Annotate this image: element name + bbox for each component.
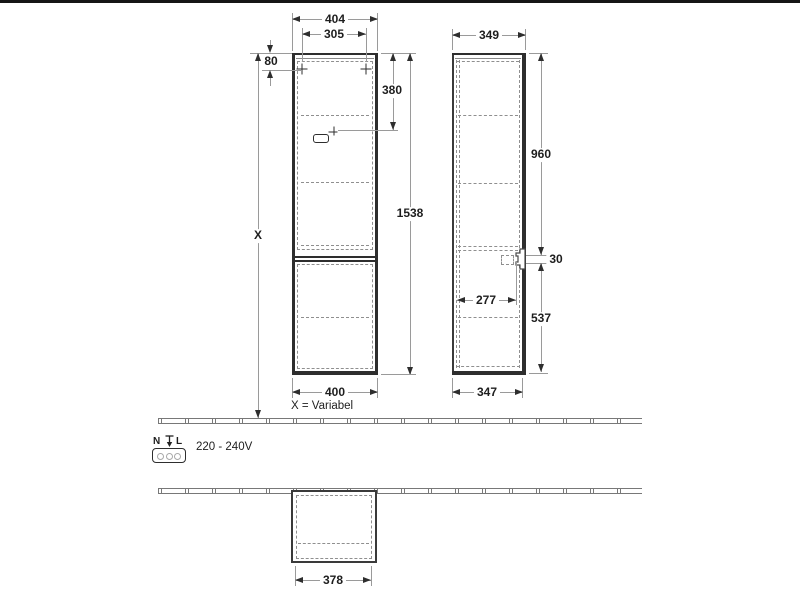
voltage-label: 220 - 240V — [196, 441, 252, 453]
dim-arrow-icon — [452, 32, 460, 38]
dimension-label: 378 — [320, 574, 346, 588]
dim-arrow-icon — [292, 16, 300, 22]
dim-arrow-icon — [267, 70, 273, 78]
plug-connector-icon — [511, 248, 531, 270]
cabinet-top-inner-line — [455, 58, 521, 59]
socket-reference-line — [338, 130, 398, 131]
socket-pin-icon — [174, 453, 181, 460]
shelf-line — [458, 246, 518, 247]
cabinet-top-edge — [452, 53, 526, 55]
dimension-label: 80 — [261, 55, 280, 69]
dimension-label: 349 — [476, 29, 502, 43]
cabinet-right-side — [375, 53, 378, 375]
socket-pin-icon — [157, 453, 164, 460]
cabinet-front-side — [522, 53, 526, 375]
extension-line — [516, 262, 517, 305]
top-border-line — [0, 0, 800, 3]
dim-arrow-icon — [538, 263, 544, 271]
interior-dashed-line — [457, 61, 519, 62]
dimension-label: 404 — [322, 13, 348, 27]
door-gap-lower-line — [295, 260, 375, 262]
shelf-line — [458, 317, 518, 318]
dim-arrow-icon — [390, 53, 396, 61]
extension-line — [452, 378, 453, 398]
extension-line — [381, 374, 416, 375]
dim-arrow-icon — [292, 389, 300, 395]
dim-arrow-icon — [255, 410, 261, 418]
shelf-line — [301, 317, 369, 318]
cabinet-bottom-edge — [292, 371, 378, 375]
shelf-line — [458, 250, 518, 251]
dimension-label: 1538 — [394, 207, 427, 221]
dim-arrow-icon — [518, 32, 526, 38]
dim-arrow-icon — [295, 577, 303, 583]
door-gap-upper-line — [295, 256, 375, 258]
wall-hatch-line — [158, 488, 642, 494]
dim-arrow-icon — [302, 31, 310, 37]
dimension-label: 537 — [528, 312, 554, 326]
power-socket-icon — [152, 448, 186, 463]
shelf-line — [458, 115, 518, 116]
dim-arrow-icon — [390, 122, 396, 130]
floor-hatch-line — [158, 418, 642, 424]
terminal-n-label: N — [153, 436, 160, 447]
dimension-label: 347 — [474, 386, 500, 400]
door-edge-dashed-line — [456, 60, 457, 368]
dim-arrow-icon — [515, 389, 523, 395]
earth-ground-icon — [164, 434, 175, 448]
extension-line — [366, 28, 367, 62]
dim-arrow-icon — [370, 389, 378, 395]
extension-line — [371, 566, 372, 586]
dimension-label: X — [251, 229, 265, 243]
shelf-line — [301, 115, 369, 116]
door-edge-dashed-line — [459, 60, 460, 368]
socket-pin-icon — [166, 453, 173, 460]
interior-dashed-line — [456, 366, 520, 367]
dimension-label: 305 — [321, 28, 347, 42]
dim-arrow-icon — [255, 53, 261, 61]
extension-line — [295, 566, 296, 586]
mounting-point-icon — [297, 64, 308, 75]
technical-drawing-page: 404 305 80 380 1538 X — [0, 0, 800, 600]
dim-arrow-icon — [538, 364, 544, 372]
shelf-line — [458, 183, 518, 184]
dimension-line — [270, 78, 271, 86]
dimension-label: 380 — [379, 84, 405, 98]
door-edge-dashed-line — [519, 60, 520, 368]
cabinet-left-side — [292, 53, 295, 375]
terminal-l-label: L — [176, 436, 182, 447]
socket-outlet-icon — [313, 134, 329, 143]
mounting-point-icon — [361, 64, 372, 75]
cabinet-plan-inner-outline — [296, 495, 372, 559]
extension-line — [292, 378, 293, 398]
extension-line — [529, 373, 548, 374]
extension-line — [522, 378, 523, 398]
dim-arrow-icon — [452, 389, 460, 395]
dim-arrow-icon — [538, 247, 544, 255]
shelf-line — [301, 245, 369, 246]
cabinet-bottom-edge — [452, 371, 526, 375]
dim-arrow-icon — [370, 16, 378, 22]
interior-dashed-line — [298, 543, 369, 544]
dim-arrow-icon — [358, 31, 366, 37]
dim-arrow-icon — [267, 45, 273, 53]
dim-arrow-icon — [508, 297, 516, 303]
dim-arrow-icon — [457, 297, 465, 303]
dim-arrow-icon — [363, 577, 371, 583]
shelf-line — [301, 182, 369, 183]
socket-position-marker-icon — [329, 127, 338, 136]
dim-arrow-icon — [538, 53, 544, 61]
extension-line — [377, 378, 378, 398]
dimension-label: 400 — [322, 386, 348, 400]
dimension-label: 960 — [528, 148, 554, 162]
dim-arrow-icon — [407, 53, 413, 61]
variable-note: X = Variabel — [291, 400, 353, 412]
cabinet-back-side — [452, 53, 454, 375]
dimension-label: 277 — [473, 294, 499, 308]
upper-door-outline — [297, 61, 373, 250]
dimension-label: 30 — [546, 253, 565, 267]
cabinet-top-inner-line — [296, 58, 374, 59]
